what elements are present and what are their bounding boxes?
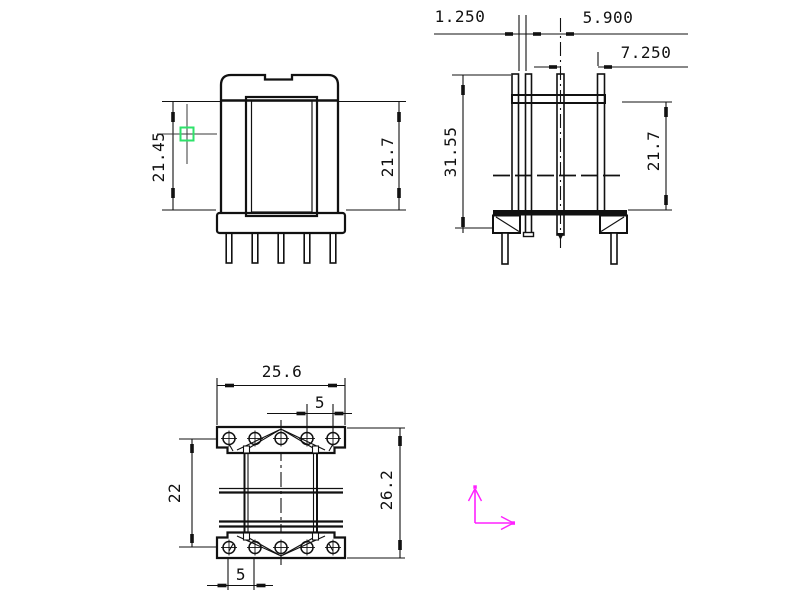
- side-dim-right-label: 21.7: [644, 131, 663, 172]
- plan-dim-width-label: 25.6: [262, 362, 303, 381]
- side-dim-inner-label: 1.250: [435, 7, 486, 26]
- side-dim-middle-label: 5.900: [583, 8, 634, 27]
- side-pin-left: [502, 233, 508, 264]
- side-dim-left-label: 31.55: [441, 127, 460, 178]
- front-window-outer: [246, 97, 317, 216]
- plan-dim-width: 25.6: [217, 362, 345, 425]
- front-window-inner: [252, 101, 313, 212]
- front-pins: [226, 233, 336, 263]
- front-body-outline: [221, 75, 338, 213]
- plan-dim-left: 22: [165, 439, 216, 547]
- front-dim-left: 21.45: [149, 102, 220, 211]
- plan-dim-bottom-pitch-label: 5: [236, 565, 246, 584]
- side-post-tip: [557, 233, 564, 240]
- drawing-sheet: 21.45 21.7: [0, 0, 800, 600]
- front-dim-left-label: 21.45: [149, 132, 168, 183]
- plan-dim-right: 26.2: [347, 428, 405, 558]
- plan-dim-bottom-pitch: 5: [207, 559, 273, 590]
- side-dim-outer-label: 7.250: [621, 43, 672, 62]
- plan-dim-right-label: 26.2: [377, 470, 396, 511]
- ucs-icon: [469, 485, 516, 529]
- front-dim-right: 21.7: [339, 102, 407, 211]
- side-dim-right: 21.7: [622, 102, 672, 210]
- cad-drawing-canvas[interactable]: 21.45 21.7: [0, 0, 800, 600]
- front-view: 21.45 21.7: [149, 75, 406, 263]
- plan-dim-top-pitch-label: 5: [315, 393, 325, 412]
- side-flange-foot-pad: [524, 233, 534, 237]
- plan-view: 25.6 5 22 26.2: [165, 362, 405, 590]
- side-view: 1.250 5.900 7.250 31.55 21.7: [434, 7, 688, 264]
- side-pin-right: [611, 233, 617, 264]
- plan-dim-left-label: 22: [165, 483, 184, 503]
- front-dim-right-label: 21.7: [378, 137, 397, 178]
- side-dim-left: 31.55: [441, 75, 511, 233]
